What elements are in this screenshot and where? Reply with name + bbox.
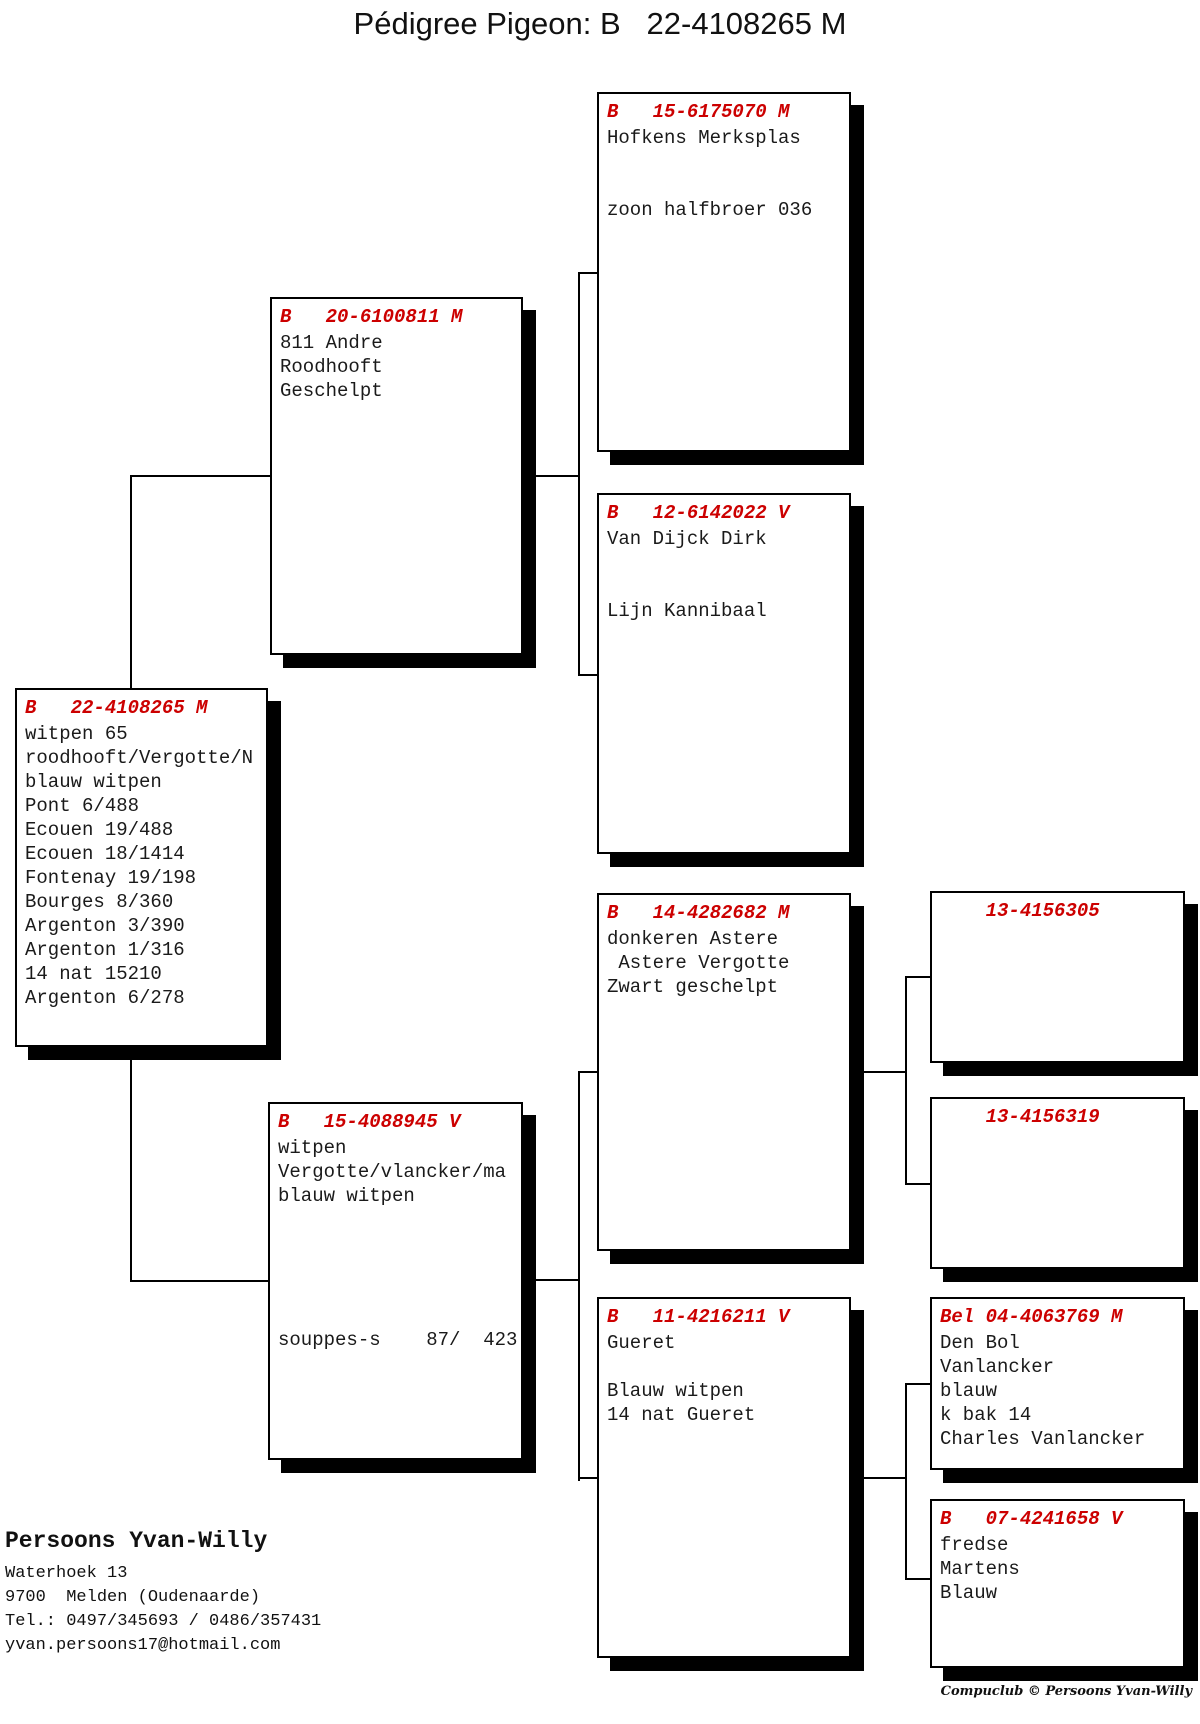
connector-line (523, 475, 580, 477)
connector-line (578, 1071, 599, 1073)
owner-street: Waterhoek 13 (5, 1562, 321, 1586)
page-title: Pédigree Pigeon: B 22-4108265 M (0, 6, 1200, 42)
pedigree-notes (932, 1128, 1183, 1131)
pedigree-notes: Van Dijck Dirk Lijn Kannibaal (599, 524, 849, 623)
pedigree-box-dam-sire-dam: 13-4156319 (930, 1097, 1185, 1269)
pedigree-notes: 811 Andre Roodhooft Geschelpt (272, 328, 521, 403)
connector-line (905, 976, 932, 978)
ring-number-header: 13-4156305 (932, 893, 1183, 922)
pedigree-box-dam-sire-sire: 13-4156305 (930, 891, 1185, 1063)
owner-city: 9700 Melden (Oudenaarde) (5, 1586, 321, 1610)
ring-number-header: B 20-6100811 M (272, 299, 521, 328)
connector-line (130, 1280, 270, 1282)
owner-name: Persoons Yvan-Willy (5, 1528, 321, 1554)
pedigree-box-dam-dam-dam: B 07-4241658 V fredse Martens Blauw (930, 1499, 1185, 1668)
owner-email: yvan.persoons17@hotmail.com (5, 1634, 321, 1658)
connector-line (578, 1071, 580, 1481)
pedigree-box-subject: B 22-4108265 M witpen 65 roodhooft/Vergo… (15, 688, 268, 1047)
ring-number-header: Bel 04-4063769 M (932, 1299, 1183, 1328)
pedigree-notes: witpen 65 roodhooft/Vergotte/N blauw wit… (17, 719, 266, 1010)
pedigree-notes: Hofkens Merksplas zoon halfbroer 036 (599, 123, 849, 222)
ring-number-header: B 22-4108265 M (17, 690, 266, 719)
pedigree-box-sire-dam: B 12-6142022 V Van Dijck Dirk Lijn Kanni… (597, 493, 851, 854)
pedigree-page: Pédigree Pigeon: B 22-4108265 M B 15-617… (0, 0, 1200, 1724)
pedigree-box-dam-sire: B 14-4282682 M donkeren Astere Astere Ve… (597, 893, 851, 1251)
connector-line (578, 1477, 599, 1479)
pedigree-notes (932, 922, 1183, 925)
pedigree-notes: donkeren Astere Astere Vergotte Zwart ge… (599, 924, 849, 999)
connector-line (905, 1383, 932, 1385)
connector-line (905, 1183, 932, 1185)
ring-number-header: B 07-4241658 V (932, 1501, 1183, 1530)
pedigree-notes: fredse Martens Blauw (932, 1530, 1183, 1605)
owner-phone: Tel.: 0497/345693 / 0486/357431 (5, 1610, 321, 1634)
connector-line (851, 1071, 907, 1073)
pedigree-notes: Gueret Blauw witpen 14 nat Gueret (599, 1328, 849, 1427)
ring-number-header: B 14-4282682 M (599, 895, 849, 924)
connector-line (130, 475, 270, 477)
pedigree-notes: Den Bol Vanlancker blauw k bak 14 Charle… (932, 1328, 1183, 1451)
ring-number-header: B 15-6175070 M (599, 94, 849, 123)
connector-line (851, 1477, 907, 1479)
pedigree-box-sire: B 20-6100811 M 811 Andre Roodhooft Gesch… (270, 297, 523, 655)
owner-block: Persoons Yvan-Willy Waterhoek 13 9700 Me… (5, 1528, 321, 1658)
connector-line (905, 1383, 907, 1580)
ring-number-header: B 12-6142022 V (599, 495, 849, 524)
ring-number-header: B 11-4216211 V (599, 1299, 849, 1328)
connector-line (578, 674, 599, 676)
connector-line (523, 1279, 580, 1281)
connector-line (578, 272, 580, 676)
compuclub-credit: Compuclub © Persoons Yvan-Willy (941, 1684, 1192, 1699)
pedigree-box-dam-dam-sire: Bel 04-4063769 M Den Bol Vanlancker blau… (930, 1297, 1185, 1470)
pedigree-notes: witpen Vergotte/vlancker/ma blauw witpen… (270, 1133, 521, 1352)
pedigree-box-dam: B 15-4088945 V witpen Vergotte/vlancker/… (268, 1102, 523, 1460)
ring-number-header: B 15-4088945 V (270, 1104, 521, 1133)
pedigree-box-sire-sire: B 15-6175070 M Hofkens Merksplas zoon ha… (597, 92, 851, 452)
connector-line (130, 475, 132, 690)
connector-line (905, 1578, 932, 1580)
connector-line (578, 272, 599, 274)
ring-number-header: 13-4156319 (932, 1099, 1183, 1128)
pedigree-box-dam-dam: B 11-4216211 V Gueret Blauw witpen 14 na… (597, 1297, 851, 1658)
connector-line (130, 1047, 132, 1282)
connector-line (905, 976, 907, 1185)
